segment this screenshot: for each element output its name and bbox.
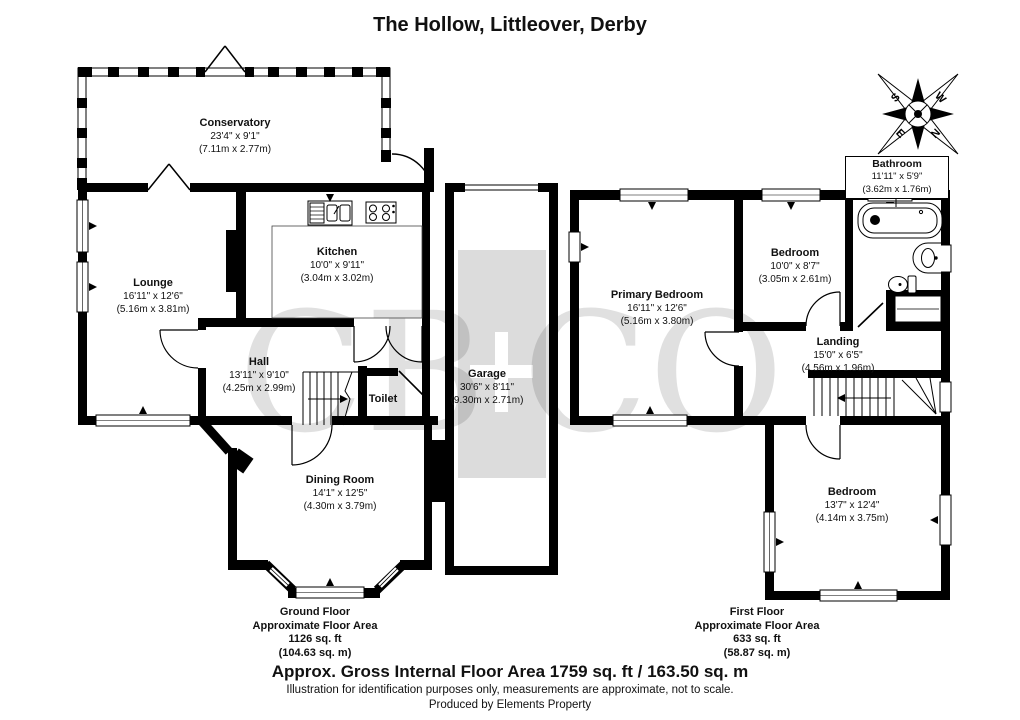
- room-dims-imperial: 16'11" x 12'6": [611, 302, 703, 315]
- room-label-toilet: Toilet: [369, 393, 398, 406]
- room-label-bedroom-3: Bedroom 13'7" x 12'4" (4.14m x 3.75m): [816, 486, 889, 525]
- summary-area-label: Approximate Floor Area: [253, 620, 378, 634]
- room-dims-imperial: 16'11" x 12'6": [117, 290, 190, 303]
- room-name: Dining Room: [304, 474, 377, 487]
- bathtub-icon: [858, 197, 942, 238]
- room-name: Bathroom: [846, 158, 948, 171]
- room-label-garage: Garage 30'6" x 8'11" (9.30m x 2.71m): [451, 368, 524, 407]
- page-title: The Hollow, Littleover, Derby: [0, 14, 1020, 37]
- room-name: Bedroom: [759, 247, 832, 260]
- room-dims-imperial: 13'11" x 9'10": [223, 369, 296, 382]
- room-dims-imperial: 15'0" x 6'5": [802, 349, 875, 362]
- room-dims-metric: (9.30m x 2.71m): [451, 394, 524, 407]
- room-name: Primary Bedroom: [611, 289, 703, 302]
- room-dims-metric: (7.11m x 2.77m): [199, 143, 271, 156]
- gross-internal-area: Approx. Gross Internal Floor Area 1759 s…: [0, 662, 1020, 682]
- summary-area-sqm: (104.63 sq. m): [253, 647, 378, 661]
- room-name: Garage: [451, 368, 524, 381]
- toilet-icon: [889, 276, 917, 293]
- room-dims-imperial: 10'0" x 9'11": [301, 259, 374, 272]
- room-dims-metric: (5.16m x 3.80m): [611, 315, 703, 328]
- room-dims-imperial: 11'11" x 5'9": [846, 171, 948, 184]
- first-floor-summary: First Floor Approximate Floor Area 633 s…: [695, 606, 820, 660]
- kitchen-hob-icon: [366, 202, 396, 223]
- dining-bay-diagonals: [266, 564, 404, 590]
- room-label-conservatory: Conservatory 23'4" x 9'1" (7.11m x 2.77m…: [199, 117, 271, 156]
- room-name: Hall: [223, 356, 296, 369]
- room-name: Kitchen: [301, 246, 374, 259]
- room-dims-imperial: 30'6" x 8'11": [451, 381, 524, 394]
- room-label-dining-room: Dining Room 14'1" x 12'5" (4.30m x 3.79m…: [304, 474, 377, 513]
- room-label-primary-bedroom: Primary Bedroom 16'11" x 12'6" (5.16m x …: [611, 289, 703, 328]
- room-dims-metric: (3.04m x 3.02m): [301, 272, 374, 285]
- room-dims-metric: (5.16m x 3.81m): [117, 303, 190, 316]
- bathroom-sink-icon: [913, 243, 941, 273]
- room-label-kitchen: Kitchen 10'0" x 9'11" (3.04m x 3.02m): [301, 246, 374, 285]
- room-name: Landing: [802, 336, 875, 349]
- room-name: Bedroom: [816, 486, 889, 499]
- producer-text: Produced by Elements Property: [0, 699, 1020, 711]
- room-dims-metric: (4.56m x 1.96m): [802, 362, 875, 375]
- room-label-bathroom: Bathroom 11'11" x 5'9" (3.62m x 1.76m): [845, 156, 949, 199]
- room-dims-imperial: 10'0" x 8'7": [759, 260, 832, 273]
- kitchen-sink-icon: [308, 201, 352, 225]
- summary-area-sqft: 633 sq. ft: [695, 633, 820, 647]
- summary-area-sqft: 1126 sq. ft: [253, 633, 378, 647]
- room-label-hall: Hall 13'11" x 9'10" (4.25m x 2.99m): [223, 356, 296, 395]
- room-dims-metric: (4.14m x 3.75m): [816, 512, 889, 525]
- first-floor-stairs: [814, 378, 936, 416]
- floorplan-page: CB CO: [0, 0, 1020, 720]
- room-dims-metric: (3.62m x 1.76m): [846, 184, 948, 197]
- room-dims-metric: (4.25m x 2.99m): [223, 382, 296, 395]
- summary-floor-name: Ground Floor: [253, 606, 378, 620]
- ground-floor-summary: Ground Floor Approximate Floor Area 1126…: [253, 606, 378, 660]
- summary-floor-name: First Floor: [695, 606, 820, 620]
- room-dims-imperial: 14'1" x 12'5": [304, 487, 377, 500]
- room-label-lounge: Lounge 16'11" x 12'6" (5.16m x 3.81m): [117, 277, 190, 316]
- room-dims-metric: (3.05m x 2.61m): [759, 273, 832, 286]
- room-label-bedroom-2: Bedroom 10'0" x 8'7" (3.05m x 2.61m): [759, 247, 832, 286]
- room-dims-metric: (4.30m x 3.79m): [304, 500, 377, 513]
- compass-icon: S W E N: [878, 74, 958, 154]
- summary-area-sqm: (58.87 sq. m): [695, 647, 820, 661]
- room-label-landing: Landing 15'0" x 6'5" (4.56m x 1.96m): [802, 336, 875, 375]
- room-name: Toilet: [369, 393, 398, 406]
- disclaimer-text: Illustration for identification purposes…: [0, 684, 1020, 696]
- room-name: Lounge: [117, 277, 190, 290]
- room-dims-imperial: 13'7" x 12'4": [816, 499, 889, 512]
- room-dims-imperial: 23'4" x 9'1": [199, 130, 271, 143]
- airing-cupboard: [895, 296, 941, 322]
- summary-area-label: Approximate Floor Area: [695, 620, 820, 634]
- room-name: Conservatory: [199, 117, 271, 130]
- garage-door: [463, 185, 540, 190]
